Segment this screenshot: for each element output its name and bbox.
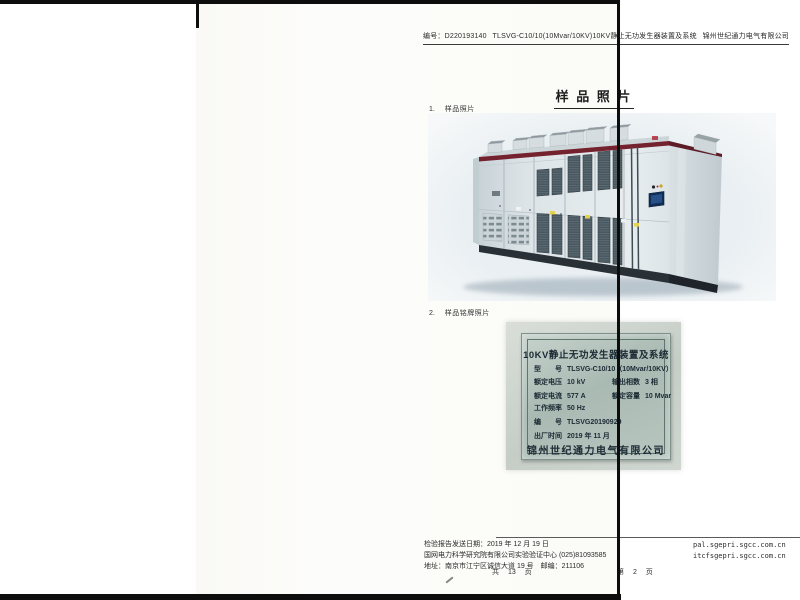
section-2-label: 样品铭牌照片	[445, 308, 490, 318]
nameplate-photo: 10KV静止无功发生器装置及系统 型 号TLSVG-C10/10（10Mvar/…	[506, 322, 681, 470]
page-title: 样 品 照 片	[526, 86, 662, 109]
page-count-total: 共 13 页	[492, 567, 532, 577]
nameplate-row-date: 出厂时间2019 年 11 月	[534, 431, 664, 441]
cabinet-body	[473, 124, 722, 293]
footer-organization: 国网电力科学研究院有限公司实验验证中心 (025)81093585	[424, 550, 606, 561]
page-count-current: 第 2 页	[617, 567, 653, 577]
scan-edge-left	[196, 0, 199, 28]
footer-rule	[496, 537, 800, 538]
report-header-title: TLSVG-C10/10(10Mvar/10KV)10KV静止无功发生器装置及系…	[493, 32, 697, 41]
scanned-report-page: 编号：D220193140 TLSVG-C10/10(10Mvar/10KV)1…	[196, 0, 621, 600]
nameplate-plate: 10KV静止无功发生器装置及系统 型 号TLSVG-C10/10（10Mvar/…	[521, 333, 671, 460]
footer-send-date: 检验报告发送日期：2019 年 12 月 19 日	[424, 539, 606, 550]
nameplate-row-model: 型 号TLSVG-C10/10（10Mvar/10KV）	[534, 364, 664, 374]
nameplate-company: 锦州世纪通力电气有限公司	[522, 442, 670, 457]
scan-edge-right	[617, 0, 620, 600]
footer-site-1: pal.sgepri.sgcc.com.cn	[693, 540, 786, 551]
ink-mark	[445, 576, 453, 583]
nameplate-row-frequency: 工作频率50 Hz	[534, 403, 664, 413]
report-header-company: 锦州世纪通力电气有限公司	[703, 32, 789, 41]
scan-edge-top	[0, 0, 618, 4]
nameplate-row-current-capacity: 额定电流577 A 额定容量10 Mvar	[534, 391, 664, 401]
section-2-index: 2.	[429, 310, 435, 317]
section-2-heading: 2. 样品铭牌照片	[429, 308, 490, 318]
scan-edge-bottom	[0, 594, 621, 600]
nameplate-title: 10KV静止无功发生器装置及系统	[522, 347, 670, 361]
cabinet-illustration	[428, 113, 776, 301]
footer-site-2: itcfsgepri.sgcc.com.cn	[693, 551, 786, 562]
sample-photo	[428, 113, 776, 301]
report-number: 编号：D220193140	[423, 32, 487, 41]
section-1-index: 1.	[429, 106, 435, 113]
nameplate-row-voltage-phases: 额定电压10 kV 输出相数3 相	[534, 377, 664, 387]
footer-right-block: pal.sgepri.sgcc.com.cn itcfsgepri.sgcc.c…	[693, 540, 786, 562]
nameplate-row-serial: 编 号TLSVG20190929	[534, 417, 664, 427]
report-header: 编号：D220193140 TLSVG-C10/10(10Mvar/10KV)1…	[423, 32, 789, 45]
